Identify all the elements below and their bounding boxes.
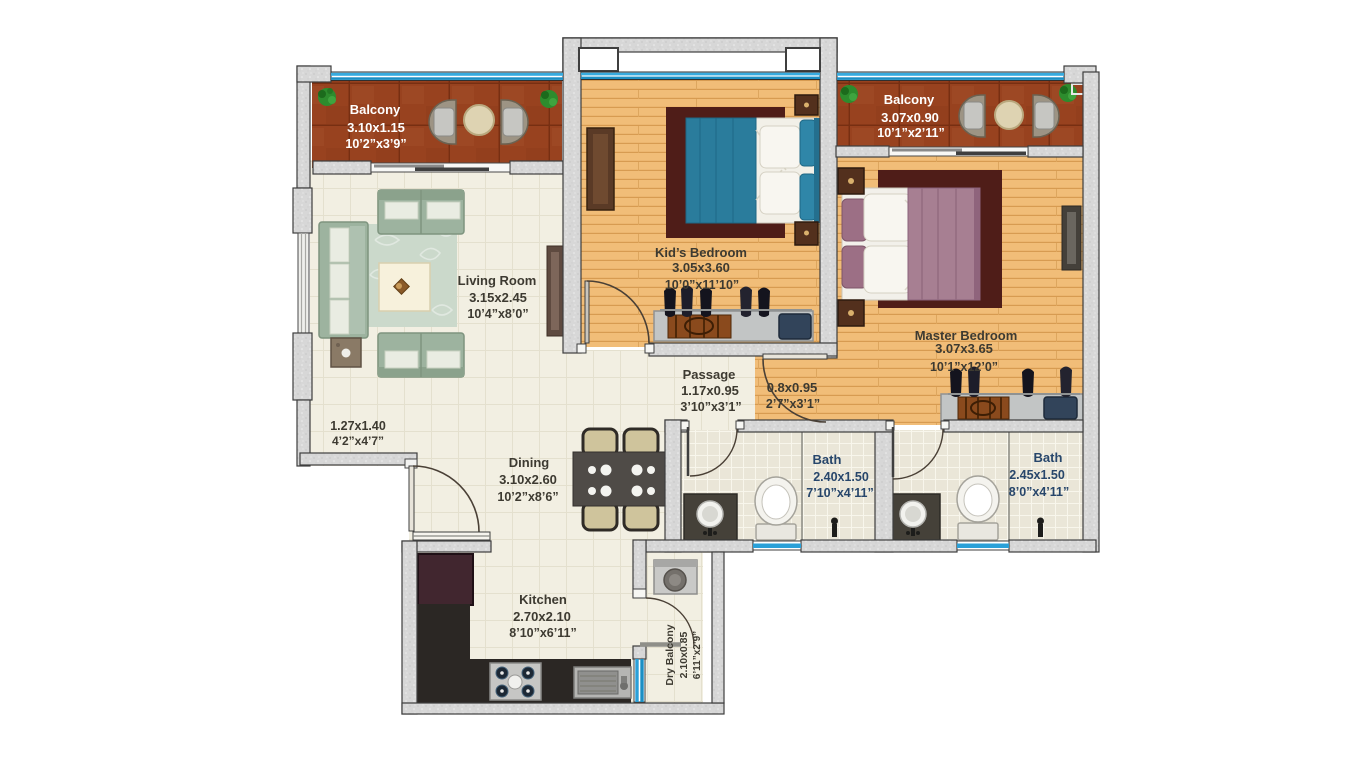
svg-text:1.27x1.40: 1.27x1.40 — [330, 419, 386, 433]
svg-text:10’0”x11’10”: 10’0”x11’10” — [665, 278, 739, 292]
svg-text:8’10”x6’11”: 8’10”x6’11” — [509, 626, 576, 640]
svg-text:2’7”x3’1”: 2’7”x3’1” — [766, 397, 820, 411]
svg-text:3’10”x3’1”: 3’10”x3’1” — [680, 400, 741, 414]
svg-text:10’2”x3’9”: 10’2”x3’9” — [345, 137, 406, 151]
svg-text:3.10x2.60: 3.10x2.60 — [499, 472, 557, 487]
svg-text:Balcony: Balcony — [884, 92, 935, 107]
svg-text:10’4”x8’0”: 10’4”x8’0” — [467, 307, 528, 321]
svg-text:Bath: Bath — [813, 452, 842, 467]
svg-text:Dining: Dining — [509, 455, 549, 470]
svg-text:Balcony: Balcony — [350, 102, 401, 117]
svg-text:1.17x0.95: 1.17x0.95 — [681, 383, 739, 398]
svg-text:10’2”x8’6”: 10’2”x8’6” — [497, 490, 558, 504]
svg-text:4’2”x4’7”: 4’2”x4’7” — [332, 434, 384, 448]
svg-text:2.70x2.10: 2.70x2.10 — [513, 609, 571, 624]
svg-text:Living Room: Living Room — [458, 273, 537, 288]
svg-text:0.8x0.95: 0.8x0.95 — [767, 380, 818, 395]
svg-text:6’11”x2’9”: 6’11”x2’9” — [692, 631, 703, 679]
svg-text:Bath: Bath — [1034, 450, 1063, 465]
svg-text:Kitchen: Kitchen — [519, 592, 567, 607]
svg-text:2.10x0.85: 2.10x0.85 — [678, 631, 690, 678]
svg-text:Kid’s Bedroom: Kid’s Bedroom — [655, 245, 747, 260]
svg-text:3.07x3.65: 3.07x3.65 — [935, 341, 993, 356]
svg-text:8’0”x4’11”: 8’0”x4’11” — [1009, 485, 1069, 499]
svg-text:10’1”x2’11”: 10’1”x2’11” — [877, 126, 944, 140]
svg-text:2.40x1.50: 2.40x1.50 — [813, 470, 869, 484]
svg-text:7’10”x4’11”: 7’10”x4’11” — [806, 486, 873, 500]
svg-text:2.45x1.50: 2.45x1.50 — [1009, 468, 1065, 482]
svg-text:10’1”x12’0”: 10’1”x12’0” — [930, 360, 998, 374]
svg-text:3.07x0.90: 3.07x0.90 — [881, 110, 939, 125]
svg-text:Passage: Passage — [683, 367, 736, 382]
svg-text:3.15x2.45: 3.15x2.45 — [469, 290, 527, 305]
svg-text:3.05x3.60: 3.05x3.60 — [672, 260, 730, 275]
svg-text:3.10x1.15: 3.10x1.15 — [347, 120, 405, 135]
svg-text:Dry Balcony: Dry Balcony — [664, 624, 676, 685]
